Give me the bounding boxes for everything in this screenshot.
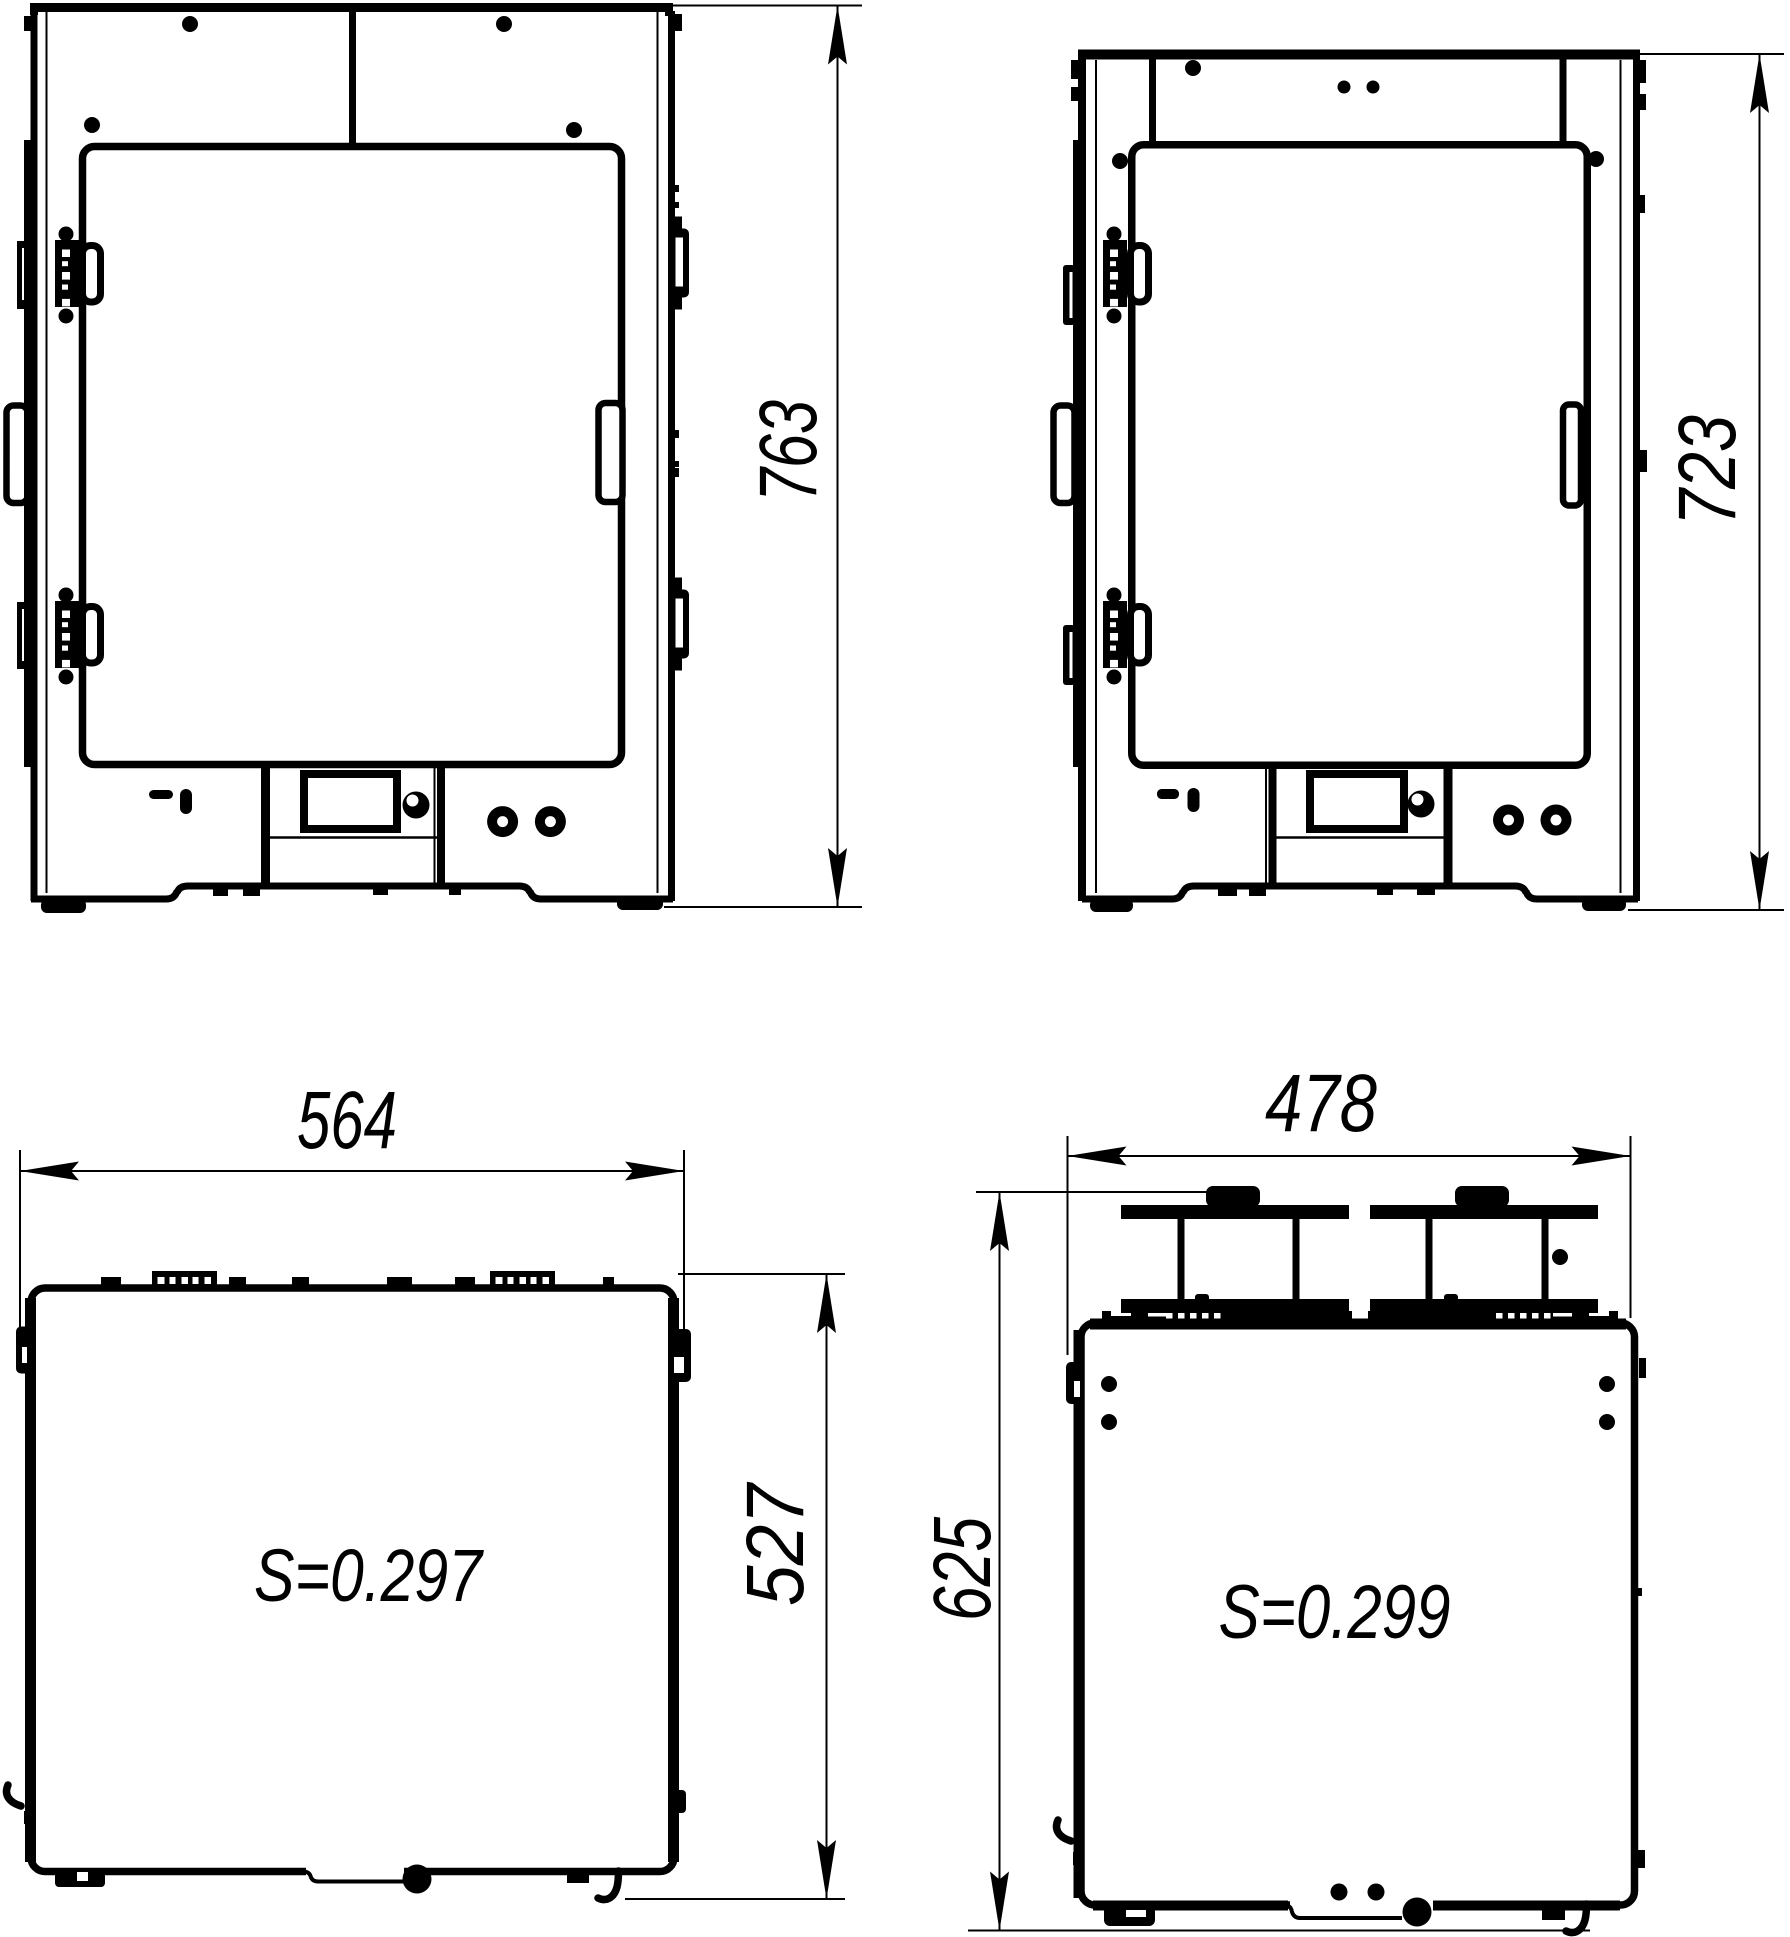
svg-text:564: 564 <box>297 1075 397 1166</box>
svg-text:723: 723 <box>1662 415 1753 526</box>
svg-text:527: 527 <box>730 1481 821 1606</box>
svg-text:763: 763 <box>743 400 834 502</box>
svg-text:S=0.297: S=0.297 <box>254 1534 484 1617</box>
svg-text:625: 625 <box>917 1517 1008 1621</box>
svg-text:S=0.299: S=0.299 <box>1219 1570 1451 1655</box>
svg-text:478: 478 <box>1265 1058 1377 1149</box>
